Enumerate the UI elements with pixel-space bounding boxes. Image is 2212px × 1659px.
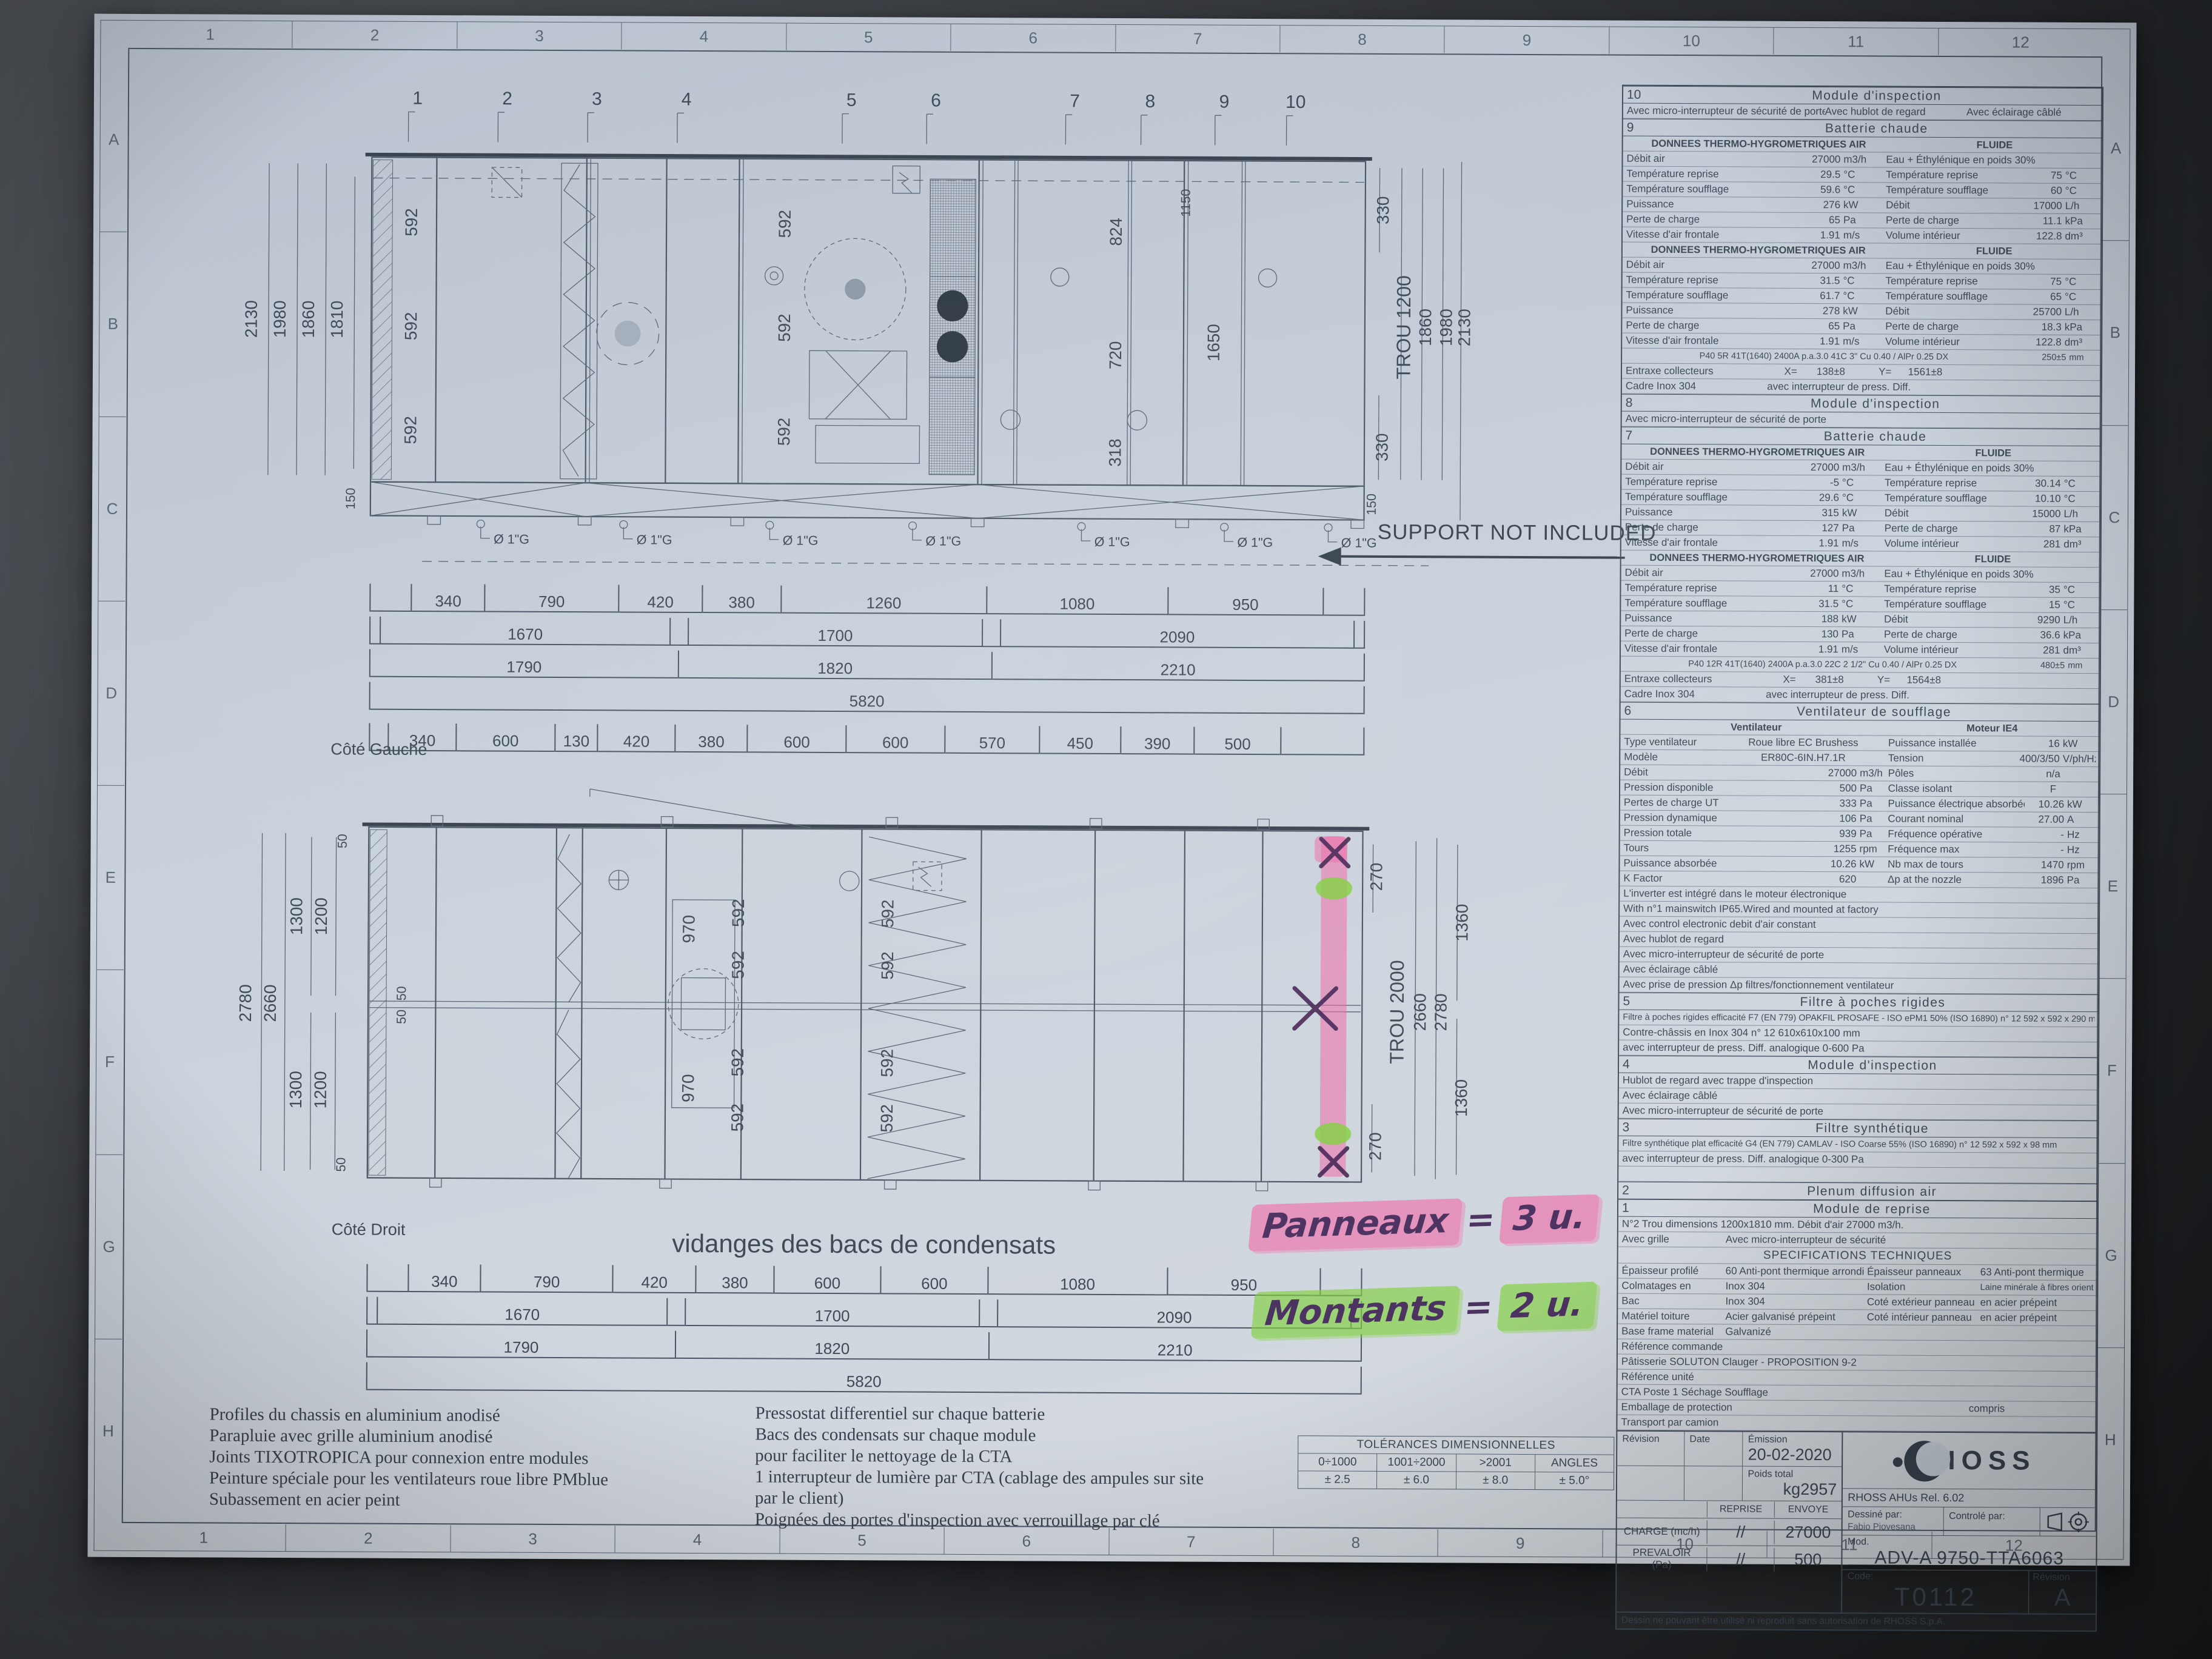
dim-value: 420 <box>641 1275 668 1290</box>
table-row: Avec grilleAvec micro-interrupteur de sé… <box>1618 1232 2097 1249</box>
table-row: Vitesse d'air frontale1.91m/sVolume inté… <box>1621 535 2100 552</box>
dim-segment: 1080 <box>987 1267 1167 1295</box>
table-cell: 16 <box>2011 737 2063 749</box>
grid-label: 1 <box>128 21 292 48</box>
section-number: 9 <box>1627 120 1655 135</box>
table-cell: L/h <box>2063 614 2097 626</box>
table-cell: 10.26 <box>2025 799 2067 811</box>
dim-value: 5820 <box>850 693 885 709</box>
dim-segment <box>1322 588 1364 616</box>
table-cell: Température reprise <box>1886 275 2013 288</box>
table-cell: kW <box>1842 507 1885 519</box>
checked-by-label: Controlé par: <box>1949 1511 2005 1521</box>
grid-label: F <box>2098 978 2125 1162</box>
section-number: 7 <box>1626 428 1654 443</box>
marker-label: 9 <box>1219 92 1230 112</box>
dim-label: 2660 <box>1410 993 1429 1031</box>
section-title: Filtre synthétique <box>1651 1120 2094 1136</box>
code-row: Code: T0112 Révision A <box>1842 1570 2096 1614</box>
note-line: Peinture spéciale pour les ventilateurs … <box>209 1468 608 1491</box>
table-cell: Avec micro-interrupteur de sécurité de p… <box>1626 413 2097 427</box>
dim-value: 1700 <box>815 1308 850 1324</box>
plan-view-drawing: 2780 2660 1300 1200 1300 1200 50 50 50 5… <box>198 761 1473 1221</box>
dim-segment: 600 <box>845 725 944 754</box>
section-number: 6 <box>1624 703 1652 718</box>
dim-segment: 340 <box>407 1264 480 1293</box>
table-cell: avec interrupteur de press. Diff. analog… <box>1623 1042 2094 1056</box>
table-row: DONNEES THERMO-HYGROMETRIQUES AIRFLUIDE <box>1621 444 2100 461</box>
table-cell: Emballage de protection <box>1621 1401 1881 1415</box>
plan-right-dimensions: 270 TROU 2000 270 2660 2780 1360 1360 <box>1366 838 1472 1179</box>
grid-label: 12 <box>1938 28 2103 56</box>
table-cell: Pa <box>1843 214 1886 226</box>
table-cell: 500 <box>1718 782 1860 794</box>
table-cell: K Factor <box>1623 873 1718 885</box>
annotation-equals: = <box>1459 1199 1503 1240</box>
dim-segment: 1700 <box>688 618 982 647</box>
dim-label: 150 <box>343 488 358 509</box>
note-line: Profiles du chassis en aluminium anodisé <box>209 1404 608 1427</box>
dim-label: 50 <box>335 834 350 848</box>
table-cell: 281 <box>2011 644 2063 656</box>
dim-label: 592 <box>728 1048 747 1077</box>
dim-value: 2210 <box>1161 662 1196 677</box>
dim-segment: 600 <box>747 725 846 753</box>
base-frame <box>370 482 1429 566</box>
table-cell: 1.91 <box>1781 335 1843 347</box>
rhoss-rel: RHOSS AHUs Rel. 6.02 <box>1843 1489 2096 1508</box>
table-row: Contre-châssis en Inox 304 n° 12 610x610… <box>1619 1025 2098 1042</box>
dim-chain-sections: 179018202210 <box>369 649 1365 682</box>
table-cell: Entraxe collecteurs <box>1624 673 1766 686</box>
table-cell: Température reprise <box>1886 169 2013 182</box>
dim-label: 1810 <box>327 301 346 338</box>
table-cell: Pa <box>1860 797 1888 809</box>
table-cell: °C <box>2065 276 2098 288</box>
top-elevation-drawing: 1 2 3 4 5 6 7 8 9 10 2130 1980 1860 1810… <box>201 78 1477 577</box>
table-cell: Avec hublot de regard <box>1623 933 2095 947</box>
dim-value: 2210 <box>1158 1342 1193 1358</box>
dim-label: 1980 <box>1436 309 1455 346</box>
table-row: Température soufflage59.6°CTempérature s… <box>1623 182 2102 199</box>
table-cell: Type ventilateur <box>1624 736 1718 749</box>
table-row: Entraxe collecteursX=381±8Y=1564±8 <box>1621 672 2100 689</box>
module-markers: 1 2 3 4 5 6 7 8 9 10 <box>408 89 1305 146</box>
table-cell: Température soufflage <box>1626 183 1782 196</box>
dim-value: 1260 <box>866 595 901 611</box>
table-cell: Matériel toiture <box>1621 1310 1725 1323</box>
table-row: Température reprise11°CTempérature repri… <box>1621 581 2100 598</box>
charge-envoye: 27000 <box>1774 1520 1842 1544</box>
table-cell: dm³ <box>2063 645 2096 657</box>
table-row: Avec éclairage câblé <box>1620 962 2099 979</box>
table-cell: Contre-châssis en Inox 304 n° 12 610x610… <box>1623 1027 2094 1041</box>
dim-label: 318 <box>1105 438 1124 467</box>
dim-value: 600 <box>921 1276 948 1292</box>
dim-value: 790 <box>534 1274 560 1290</box>
table-cell: m/s <box>1843 335 1885 347</box>
marker-label: 5 <box>846 90 857 110</box>
table-cell: X= <box>1767 366 1800 378</box>
tolerance-val: ± 8.0 <box>1455 1472 1534 1489</box>
table-cell: °C <box>1843 184 1886 196</box>
table-cell: Référence unité <box>1621 1371 2093 1385</box>
dim-label: 1150 <box>1178 189 1193 217</box>
marker-label: 1 <box>412 89 423 109</box>
dim-chain-modules-2: 3407904203806006001080950 <box>366 1264 1362 1296</box>
table-row: Puissance absorbée à l'axe10.26kWNb max … <box>1620 856 2099 873</box>
model-label: Mod. <box>1848 1537 1869 1547</box>
table-cell <box>1867 1332 2093 1333</box>
plan-internal-dimensions: 592 592 592 592 592 592 592 592 970 970 <box>679 899 897 1133</box>
table-cell: Avec control electronic debit d'air cons… <box>1623 918 2095 932</box>
table-row: Avec micro-interrupteur de sécurité de p… <box>1623 104 2102 121</box>
table-cell: Nb max de tours <box>1888 859 2025 871</box>
dim-label: 592 <box>401 312 420 341</box>
tolerance-col: >2001 <box>1456 1454 1535 1472</box>
table-cell: Température reprise <box>1624 582 1780 595</box>
grid-label: 11 <box>1774 28 1939 55</box>
table-cell: Pa <box>1842 522 1885 534</box>
pipe-label: Ø 1"G <box>637 532 672 547</box>
section-title: Filtre à poches rigides <box>1651 994 2094 1010</box>
grid-label: 7 <box>1108 1528 1273 1555</box>
marker-label: 3 <box>592 89 602 109</box>
dim-segment: 950 <box>1167 587 1322 615</box>
table-cell: 1.91 <box>1782 229 1843 241</box>
dim-label: 330 <box>1373 196 1392 225</box>
table-row: SPECIFICATIONS TECHNIQUES <box>1618 1247 2097 1265</box>
grid-label: C <box>98 416 126 600</box>
table-cell: Eau + Éthylénique en poids 30% <box>1884 568 2096 581</box>
dim-value: 600 <box>882 734 909 750</box>
table-cell: P40 12R 41T(1640) 2400A p.a.3.0 22C 2 1/… <box>1624 659 2021 671</box>
rhoss-logo: RHOSS <box>1843 1432 2096 1490</box>
dim-chain-groups: 167017002090 <box>369 617 1365 649</box>
dim-segment: 380 <box>674 725 747 753</box>
table-cell: Température soufflage <box>1884 598 2011 611</box>
table-cell: Vitesse d'air frontale <box>1626 229 1782 241</box>
table-row: Hublot de regard avec trappe d'inspectio… <box>1619 1073 2098 1090</box>
table-cell: Pression totale <box>1624 827 1718 840</box>
table-cell: Puissance installée <box>1888 737 2011 750</box>
grid-label: H <box>95 1338 122 1523</box>
table-cell: 10.10 <box>2012 492 2064 504</box>
annotation-value: 2 u. <box>1496 1282 1598 1332</box>
table-cell: Vitesse d'air frontale <box>1624 643 1780 655</box>
drawing-sheet: 123456789101112 123456789101112 ABCDEFGH… <box>87 14 2136 1566</box>
dim-label: 592 <box>728 1104 746 1132</box>
table-cell: Pa <box>1842 628 1884 640</box>
table-cell: 63 Anti-pont thermique <box>1980 1266 2094 1279</box>
dim-segment: 340 <box>411 584 484 612</box>
table-cell: 18.3 <box>2013 321 2065 333</box>
table-row: Température soufflage31.5°CTempérature s… <box>1621 596 2100 613</box>
dim-label: 970 <box>679 1074 697 1102</box>
table-cell: Tours <box>1624 842 1718 855</box>
table-row: Perte de charge65PaPerte de charge11.1kP… <box>1623 212 2102 229</box>
table-cell: ER80C-6IN.H7.1R <box>1718 751 1888 764</box>
dim-segment: 2210 <box>991 652 1364 682</box>
poids-label: Poids total <box>1748 1469 1837 1481</box>
dim-label: 1980 <box>270 300 289 338</box>
table-cell: 138±8 <box>1800 366 1862 378</box>
label-cote-gauche: Côté Gauche <box>330 740 427 759</box>
section-title: Ventilateur de soufflage <box>1652 703 2096 720</box>
table-cell: °C <box>1842 477 1885 489</box>
dim-label: 50 <box>394 986 409 1000</box>
table-cell: Classe isolant <box>1888 783 2011 796</box>
table-cell: Avec micro-interrupteur de sécurité <box>1726 1233 2094 1247</box>
table-cell: °C <box>1843 169 1886 181</box>
grid-label: 6 <box>950 24 1115 52</box>
table-cell: Filtre à poches rigides efficacité F7 (E… <box>1623 1013 2094 1024</box>
dim-label: 1650 <box>1204 324 1223 361</box>
table-row: 5Filtre à poches rigides <box>1619 993 2098 1012</box>
module-spec-column: 10Module d'inspectionAvec micro-interrup… <box>1615 85 2103 1632</box>
table-row: P40 12R 41T(1640) 2400A p.a.3.0 22C 2 1/… <box>1621 657 2100 674</box>
table-row: Entraxe collecteursX=138±8Y=1561±8 <box>1622 364 2101 381</box>
note-line: Poignées des portes d'inspection avec ve… <box>755 1509 1204 1532</box>
table-row: avec interrupteur de press. Diff. analog… <box>1619 1041 2098 1057</box>
dim-label: 824 <box>1107 218 1125 246</box>
table-cell: 10.26 <box>1718 857 1859 870</box>
table-cell: Inox 304 <box>1726 1280 1867 1293</box>
dim-segment <box>669 618 688 646</box>
dim-segment <box>1281 727 1364 756</box>
tolerance-col: 0÷1000 <box>1298 1453 1376 1471</box>
note-line: Parapluie avec grille aluminium anodisé <box>209 1426 608 1449</box>
table-cell: °C <box>2063 599 2097 611</box>
grid-label: F <box>96 970 123 1154</box>
table-cell: A <box>2067 814 2096 826</box>
note-line: Joints TIXOTROPICA pour connexion entre … <box>209 1447 608 1470</box>
dim-label: 1200 <box>311 1071 330 1108</box>
table-cell: kW <box>1843 305 1885 317</box>
dim-label: 2130 <box>1455 309 1473 346</box>
table-cell: Pa <box>1860 813 1888 825</box>
table-row: 7Batterie chaude <box>1621 427 2100 446</box>
table-cell: 127 <box>1781 522 1842 534</box>
marker-label: 2 <box>502 89 512 109</box>
annotation-word: Montants <box>1251 1285 1461 1339</box>
table-cell: Courant nominal <box>1888 813 2025 826</box>
pipe-label: Ø 1"G <box>925 534 961 548</box>
dim-segment: 1790 <box>369 649 678 679</box>
grid-label: B <box>99 232 127 416</box>
table-row: Cadre Inox 304avec interrupteur de press… <box>1622 379 2101 396</box>
table-cell: m/s <box>1842 537 1885 549</box>
dim-label: 2780 <box>1431 993 1450 1031</box>
tolerance-col: 1001÷2000 <box>1376 1454 1455 1472</box>
dim-label: 592 <box>774 418 793 446</box>
table-cell: 31.5 <box>1781 275 1843 287</box>
note-line: Subassement en acier peint <box>209 1489 608 1512</box>
dim-value: 2090 <box>1159 629 1195 645</box>
pipe-label: Ø 1"G <box>783 533 819 548</box>
marker-label: 10 <box>1285 92 1305 112</box>
table-row: Avec éclairage câblé <box>1619 1088 2098 1105</box>
dim-segment: 5820 <box>366 1362 1361 1395</box>
table-cell: kW <box>1859 858 1888 870</box>
table-cell: Température soufflage <box>1885 492 2012 505</box>
dim-label: 592 <box>728 951 747 979</box>
table-cell: 75 <box>2013 275 2065 287</box>
table-cell: Débit air <box>1627 153 1783 166</box>
table-row: Température soufflage61.7°CTempérature s… <box>1623 288 2102 305</box>
table-cell: 620 <box>1718 873 1859 885</box>
table-cell: N°2 Trou dimensions 1200x1810 mm. Débit … <box>1622 1218 2094 1232</box>
dim-label: 2660 <box>261 984 280 1022</box>
table-row: N°2 Trou dimensions 1200x1810 mm. Débit … <box>1618 1217 2097 1234</box>
dim-value: 1670 <box>504 1307 540 1322</box>
dim-segment: 1820 <box>678 651 991 680</box>
unit-plan <box>361 788 1370 1191</box>
table-row: 1Module de reprise <box>1618 1199 2097 1219</box>
table-row: CTA Poste 1 Séchage Soufflage <box>1618 1385 2097 1402</box>
table-cell: 60 <box>2013 184 2065 196</box>
table-cell: 315 <box>1781 507 1842 519</box>
table-cell: en acier prépeint <box>1980 1312 2093 1324</box>
table-cell: °C <box>1842 583 1884 595</box>
section-title: Batterie chaude <box>1654 428 2097 444</box>
table-row: Pression dynamique106PaCourant nominal27… <box>1620 811 2099 828</box>
dim-segment <box>366 1297 377 1325</box>
section-number: 1 <box>1622 1201 1650 1215</box>
table-cell: 281 <box>2012 538 2064 550</box>
table-cell: Température soufflage <box>1886 184 2013 197</box>
table-cell: FLUIDE <box>1889 553 2096 565</box>
dim-value: 420 <box>647 594 674 610</box>
tolerances-title: TOLÉRANCES DIMENSIONNELLES <box>1298 1436 1614 1454</box>
annotation-word: Panneaux <box>1248 1198 1463 1252</box>
table-cell: 278 <box>1781 305 1843 317</box>
table-cell: Puissance <box>1626 198 1782 211</box>
table-cell: 27000 <box>1780 568 1842 580</box>
grid-label: 9 <box>1444 26 1609 53</box>
table-cell: Pôles <box>1888 768 2011 780</box>
table-row: Avec micro-interrupteur de sécurité de p… <box>1619 1104 2098 1121</box>
table-cell: V/ph/Hz <box>2063 753 2096 765</box>
dim-segment: 1700 <box>685 1298 979 1327</box>
table-row: BacInox 304Coté extérieur panneauen acie… <box>1618 1294 2097 1311</box>
table-cell: 106 <box>1718 812 1859 825</box>
table-cell: Débit <box>1624 766 1718 779</box>
table-cell: - <box>2025 844 2067 856</box>
table-row: Pâtisserie SOLUTON Clauger - PROPOSITION… <box>1618 1355 2097 1372</box>
grid-label: 8 <box>1273 1529 1438 1556</box>
tolerance-val: ± 5.0° <box>1535 1472 1614 1490</box>
support-note: SUPPORT NOT INCLUDED <box>1378 520 1657 546</box>
table-cell: 381±8 <box>1799 674 1860 686</box>
table-cell: Débit <box>1886 199 2013 212</box>
date-col-label: Date <box>1684 1432 1743 1466</box>
table-cell: Avec hublot de regard <box>1825 106 1966 118</box>
grid-label: G <box>2097 1163 2125 1347</box>
table-cell: °C <box>2064 478 2097 490</box>
dim-segment <box>369 617 380 645</box>
table-row: Cadre Inox 304avec interrupteur de press… <box>1621 687 2100 704</box>
table-cell: 122.8 <box>2013 336 2065 348</box>
table-cell: Transport par camion <box>1621 1416 2093 1430</box>
notes-right: Pressostat differentiel sur chaque batte… <box>755 1403 1204 1532</box>
table-cell: F <box>2011 783 2096 796</box>
table-cell: Débit air <box>1626 259 1782 272</box>
dim-label: 1860 <box>1416 309 1435 346</box>
table-cell: L/h <box>2065 306 2098 318</box>
dim-segment <box>1353 621 1364 649</box>
table-cell: Y= <box>1860 674 1894 686</box>
prevaloir-envoye: 500 <box>1774 1547 1842 1571</box>
table-cell: 1255 <box>1718 842 1859 855</box>
dim-label: 592 <box>877 1104 896 1133</box>
grid-label: E <box>2099 794 2127 978</box>
table-row: 4Module d'inspection <box>1619 1056 2098 1075</box>
code-label: Code: <box>1848 1571 1874 1581</box>
title-block-footer: Dessin ne pouvant être utilisé ni reprod… <box>1617 1612 2096 1631</box>
table-row: Débit air27000m3/hEau + Éthylénique en p… <box>1623 152 2102 169</box>
table-row: Avec control electronic debit d'air cons… <box>1620 917 2099 934</box>
table-cell: 31.5 <box>1780 598 1842 610</box>
section-title: Batterie chaude <box>1655 120 2099 136</box>
table-row: Vitesse d'air frontale1.91m/sVolume inté… <box>1621 642 2100 659</box>
dim-label: 50 <box>333 1158 348 1172</box>
dim-label: 1300 <box>286 1071 305 1108</box>
dim-value: 1790 <box>504 1339 539 1355</box>
table-row: Référence unité <box>1618 1370 2097 1387</box>
grid-label: 1 <box>122 1524 286 1551</box>
dim-segment: 790 <box>480 1264 612 1293</box>
table-cell: Avec micro-interrupteur de sécurité de p… <box>1623 948 2095 962</box>
table-cell: DONNEES THERMO-HYGROMETRIQUES AIR <box>1627 138 1891 150</box>
table-row: Pression disponible500PaClasse isolantF <box>1620 780 2099 797</box>
table-cell: 11.1 <box>2013 215 2065 227</box>
dim-segment: 1080 <box>986 586 1167 615</box>
dim-label: 1360 <box>1452 904 1471 942</box>
dim-segment: 450 <box>1039 726 1120 754</box>
table-row: Avec micro-interrupteur de sécurité de p… <box>1620 947 2099 964</box>
table-cell: °C <box>2065 291 2098 303</box>
title-block-right: RHOSS RHOSS AHUs Rel. 6.02 Dessiné par: … <box>1842 1432 2096 1614</box>
revision-label: Révision <box>2029 1571 2096 1584</box>
dim-label: 1860 <box>299 300 318 338</box>
table-cell: Isolation <box>1867 1281 1980 1293</box>
table-cell: Laine minérale à fibres orientées <box>1980 1282 2094 1293</box>
annotation-montants: Montants=2 u. <box>1251 1284 1597 1334</box>
section-title: Module d'inspection <box>1651 1057 2094 1073</box>
table-cell: Perte de charge <box>1626 213 1782 226</box>
table-cell <box>1956 372 2097 373</box>
left-dimensions: 2130 1980 1860 1810 150 <box>241 163 359 509</box>
grid-label: 8 <box>1279 25 1444 53</box>
table-row: Filtre à poches rigides efficacité F7 (E… <box>1619 1010 2098 1027</box>
table-row: 6Ventilateur de soufflage <box>1621 702 2100 722</box>
pipe-labels: Ø 1"G Ø 1"G Ø 1"G Ø 1"G Ø 1"G Ø 1"G Ø 1"… <box>477 520 1377 551</box>
dim-segment: 1820 <box>675 1331 988 1360</box>
table-cell: Débit <box>1884 614 2011 626</box>
table-cell: Volume intérieur <box>1884 644 2011 657</box>
table-cell: Vitesse d'air frontale <box>1625 537 1781 549</box>
table-row: Vitesse d'air frontale1.91m/sVolume inté… <box>1622 333 2101 350</box>
table-cell: 17000 <box>2013 199 2065 212</box>
table-row: Débit air27000m3/hEau + Éthylénique en p… <box>1623 258 2102 275</box>
table-cell: 27000 <box>1718 766 1860 779</box>
table-cell: dm³ <box>2063 538 2097 551</box>
table-cell: X= <box>1766 674 1799 686</box>
dim-label: 592 <box>878 900 897 928</box>
table-cell: Avec micro-interrupteur de sécurité de p… <box>1627 105 1825 118</box>
table-cell: kW <box>2063 738 2096 750</box>
